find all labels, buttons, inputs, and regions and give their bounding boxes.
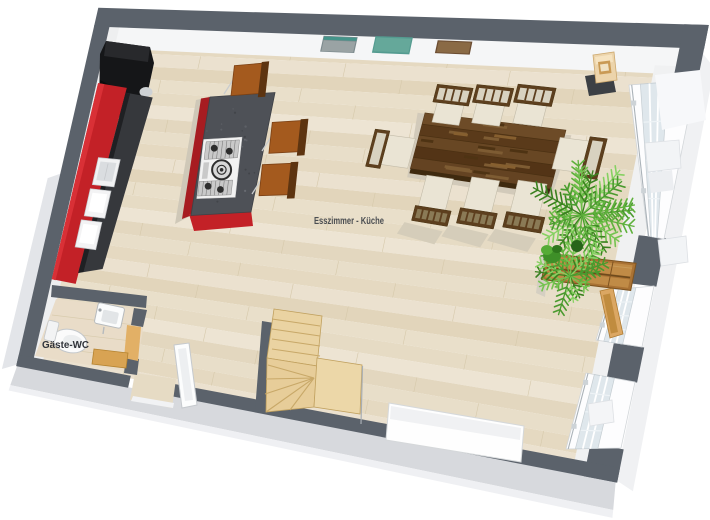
svg-text:Esszimmer - Küche: Esszimmer - Küche xyxy=(314,216,384,227)
svg-text:Gäste-WC: Gäste-WC xyxy=(42,340,89,351)
